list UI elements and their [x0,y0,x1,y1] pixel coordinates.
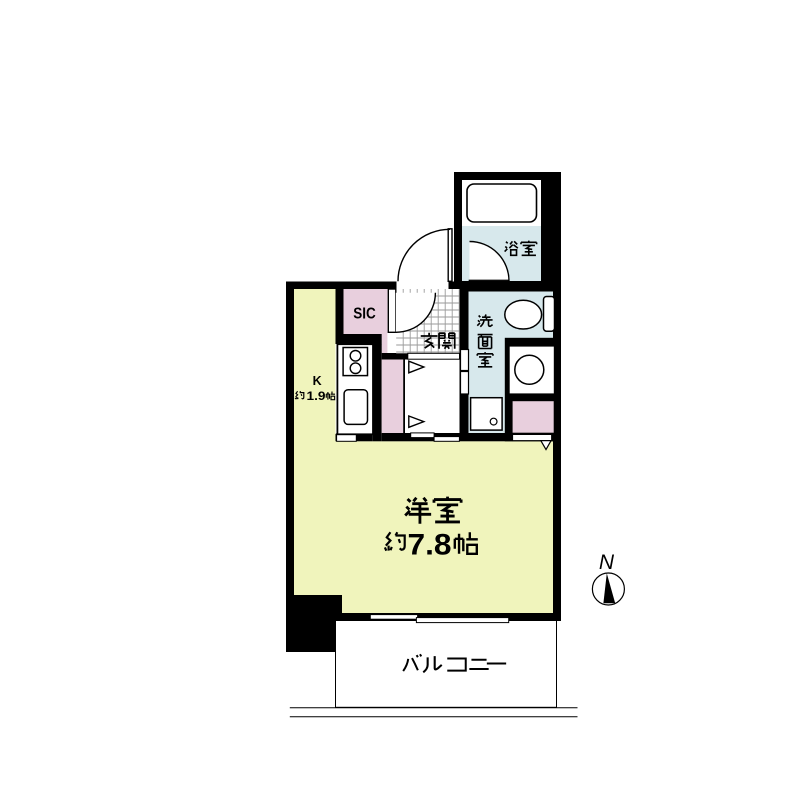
svg-text:7.8: 7.8 [408,529,452,562]
svg-text:SIC: SIC [353,306,376,323]
svg-text:1.9: 1.9 [307,389,326,403]
svg-text:K: K [313,374,322,388]
svg-text:N: N [599,551,615,574]
